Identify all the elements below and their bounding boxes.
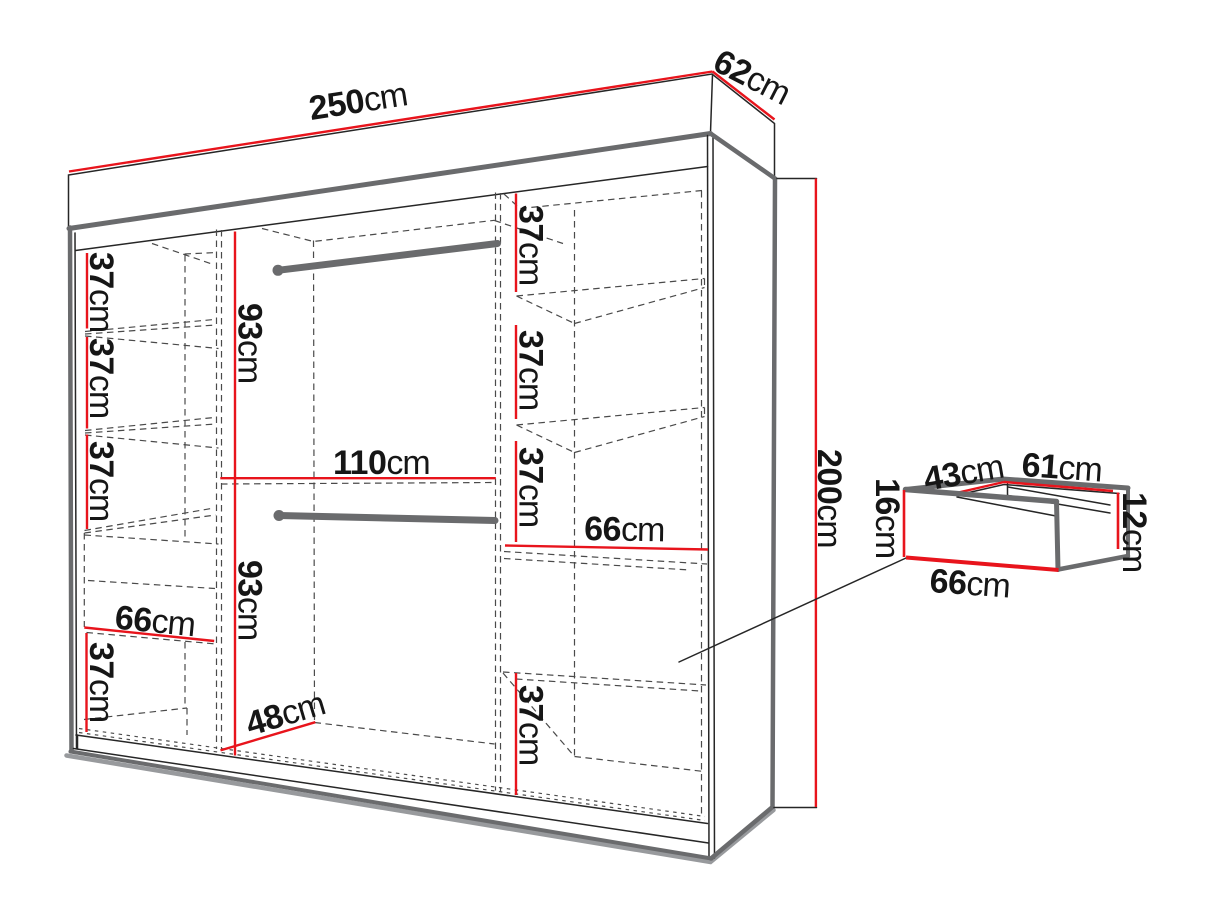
svg-text:16cm: 16cm xyxy=(868,478,906,558)
svg-text:37cm: 37cm xyxy=(512,205,550,285)
svg-text:93cm: 93cm xyxy=(231,560,269,640)
svg-text:12cm: 12cm xyxy=(1115,492,1153,572)
svg-text:37cm: 37cm xyxy=(82,252,120,332)
svg-text:37cm: 37cm xyxy=(82,441,120,521)
svg-text:61cm: 61cm xyxy=(1020,446,1103,489)
svg-text:66cm: 66cm xyxy=(584,510,665,549)
svg-text:37cm: 37cm xyxy=(512,685,550,765)
svg-text:66cm: 66cm xyxy=(113,599,196,645)
svg-text:37cm: 37cm xyxy=(82,338,120,418)
svg-text:37cm: 37cm xyxy=(512,330,550,410)
svg-text:93cm: 93cm xyxy=(231,303,269,383)
svg-text:110cm: 110cm xyxy=(333,444,430,482)
svg-text:66cm: 66cm xyxy=(928,562,1011,605)
svg-text:37cm: 37cm xyxy=(512,447,550,527)
svg-text:37cm: 37cm xyxy=(82,642,120,722)
svg-text:200cm: 200cm xyxy=(810,449,848,548)
